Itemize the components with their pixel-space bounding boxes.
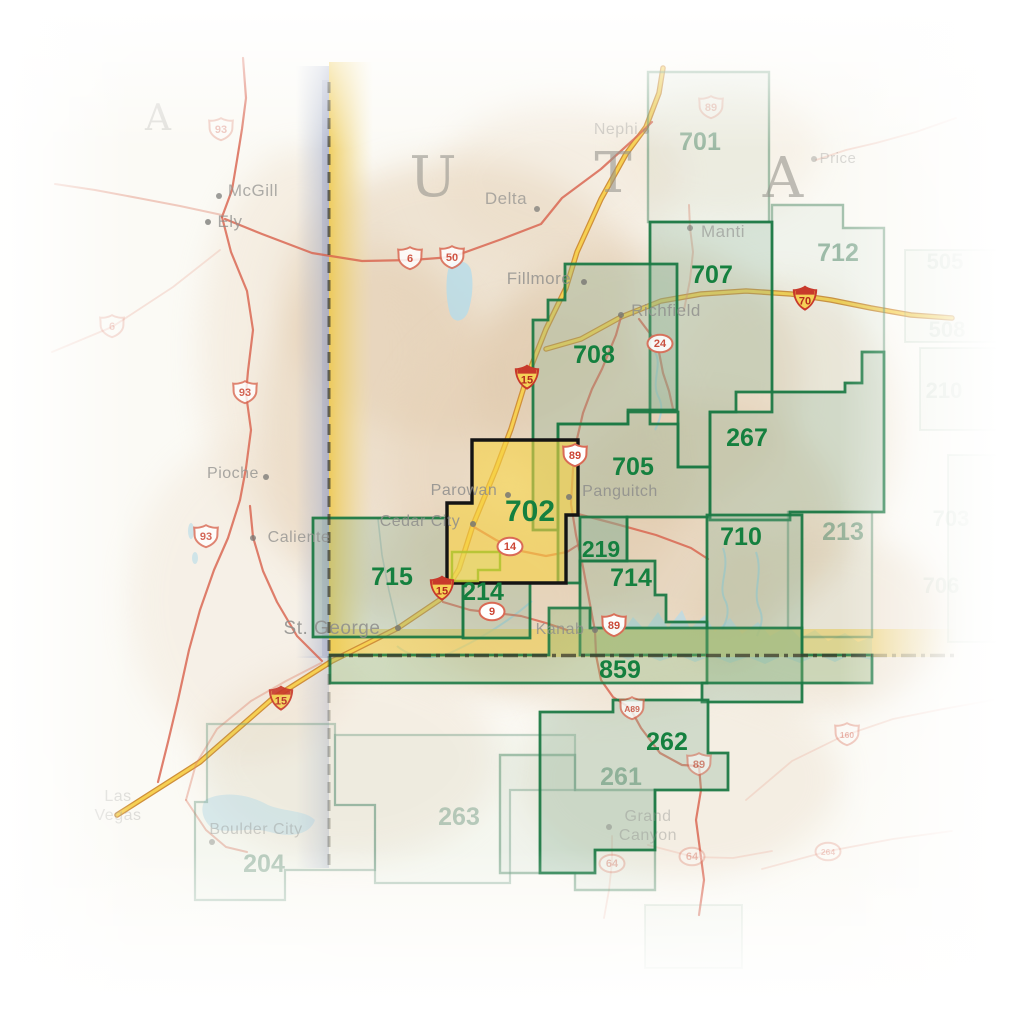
city-dot [592, 627, 598, 633]
area-label-712: 712 [817, 239, 859, 267]
neighbor-state-letter: A [144, 98, 172, 139]
area-label-267: 267 [726, 424, 768, 452]
city-dot [209, 839, 215, 845]
route-shield-50: 50 [440, 246, 464, 268]
city-label: Richfield [631, 301, 701, 320]
svg-text:89: 89 [569, 450, 581, 462]
svg-text:9: 9 [489, 606, 495, 618]
city-dot [581, 279, 587, 285]
city-label: Ely [217, 212, 242, 231]
svg-text:93: 93 [215, 124, 227, 136]
route-shield-A89: A89 [620, 697, 644, 719]
state-letter-U: U [409, 145, 456, 210]
route-shield-6: 6 [398, 247, 422, 269]
route-shield-89: 89 [699, 96, 723, 118]
index-map-svg: UTAA701712213261263204707708705267710219… [0, 0, 1024, 1024]
city-dot [618, 312, 624, 318]
route-shield-24: 24 [648, 335, 673, 353]
area-label-262: 262 [646, 728, 688, 756]
road-US-6 southwest [52, 250, 220, 352]
svg-text:15: 15 [275, 696, 287, 708]
area-label-faint-508: 508 [929, 317, 966, 342]
svg-text:50: 50 [446, 252, 458, 264]
area-label-219: 219 [582, 536, 620, 562]
svg-text:15: 15 [436, 586, 448, 598]
city-label: Price [820, 150, 857, 167]
city-ely: Ely [205, 212, 243, 231]
area-label-859: 859 [599, 656, 641, 684]
area-label-715: 715 [371, 563, 413, 591]
city-dot [606, 824, 612, 830]
city-label: Parowan [431, 482, 498, 499]
area-label-710: 710 [720, 523, 762, 551]
area-label-702: 702 [505, 495, 555, 528]
city-dot [643, 128, 649, 134]
svg-text:64: 64 [686, 851, 699, 863]
area-label-faint-210: 210 [926, 378, 963, 403]
area-label-faint-703: 703 [933, 506, 970, 531]
state-letter-A: A [762, 146, 804, 211]
city-label: Caliente [268, 529, 331, 546]
city-dot [205, 219, 211, 225]
city-dot [395, 625, 401, 631]
city-label: Nephi [594, 121, 638, 138]
state-letter-T: T [594, 141, 631, 206]
svg-text:93: 93 [239, 387, 251, 399]
svg-text:24: 24 [654, 338, 667, 350]
city-label: McGill [228, 181, 278, 200]
area-label-708: 708 [573, 341, 615, 369]
route-shield-93: 93 [194, 525, 218, 547]
area-label-707: 707 [691, 261, 733, 289]
road-Ely west [55, 184, 222, 215]
svg-text:15: 15 [521, 375, 533, 387]
area-label-214: 214 [462, 578, 504, 606]
route-shield-64: 64 [600, 855, 625, 873]
pond [192, 552, 198, 564]
city-mcgill: McGill [216, 181, 278, 200]
route-shield-89: 89 [602, 614, 626, 636]
svg-text:264: 264 [821, 847, 835, 857]
pond [188, 523, 194, 539]
svg-text:160: 160 [840, 730, 854, 740]
city-dot [534, 206, 540, 212]
svg-text:14: 14 [504, 541, 517, 553]
svg-text:6: 6 [109, 321, 115, 333]
svg-text:6: 6 [407, 253, 413, 265]
city-label: Kanab [536, 621, 585, 638]
svg-text:93: 93 [200, 531, 212, 543]
area-label-701: 701 [679, 128, 721, 156]
svg-text:89: 89 [693, 759, 705, 771]
svg-text:70: 70 [799, 296, 811, 308]
route-shield-93: 93 [233, 381, 257, 403]
city-dot [566, 494, 572, 500]
city-dot [687, 225, 693, 231]
city-dot [811, 156, 817, 162]
area-label-714: 714 [610, 564, 652, 592]
city-richfield: Richfield [618, 301, 701, 320]
svg-text:64: 64 [606, 858, 619, 870]
city-label: Panguitch [582, 483, 658, 500]
route-shield-89: 89 [687, 753, 711, 775]
route-shield-6: 6 [100, 315, 124, 337]
city-dot [505, 492, 511, 498]
route-shield-14: 14 [498, 538, 523, 556]
area-label-faint-706: 706 [923, 573, 960, 598]
city-dot [216, 193, 222, 199]
route-shield-64: 64 [680, 848, 705, 866]
area-label-faint-505: 505 [927, 249, 964, 274]
city-label: Delta [485, 189, 527, 208]
route-shield-160: 160 [835, 723, 859, 745]
city-label: Boulder City [209, 821, 302, 838]
svg-text:A89: A89 [624, 704, 640, 714]
route-shield-89: 89 [563, 444, 587, 466]
city-label: Fillmore [507, 269, 571, 288]
area-label-204: 204 [243, 850, 285, 878]
city-label: St. George [284, 618, 381, 639]
city-label: Cedar City [380, 513, 461, 530]
city-label: Pioche [207, 465, 259, 482]
city-dot [263, 474, 269, 480]
area-label-213: 213 [822, 518, 864, 546]
area-label-705: 705 [612, 453, 654, 481]
map-area-faint-2 [948, 455, 1023, 642]
svg-text:89: 89 [608, 620, 620, 632]
route-shield-9: 9 [480, 603, 505, 621]
map-canvas: UTAA701712213261263204707708705267710219… [0, 0, 1024, 1024]
area-label-263: 263 [438, 803, 480, 831]
route-shield-93: 93 [209, 118, 233, 140]
route-shield-264: 264 [816, 843, 841, 861]
map-area-faint-3 [645, 905, 742, 968]
city-label: Manti [701, 222, 745, 241]
svg-text:89: 89 [705, 102, 717, 114]
area-label-261: 261 [600, 763, 642, 791]
city-dot [250, 535, 256, 541]
city-dot [470, 521, 476, 527]
